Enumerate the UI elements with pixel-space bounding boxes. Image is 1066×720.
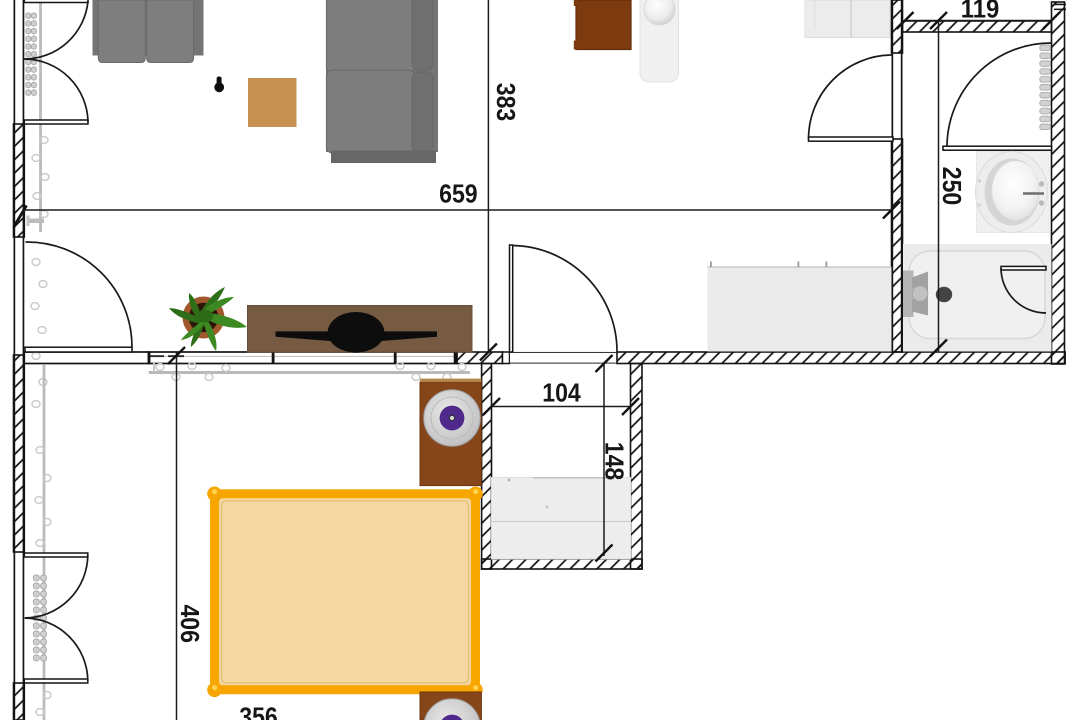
svg-text:356: 356 [239, 704, 278, 720]
svg-text:148: 148 [600, 442, 628, 481]
svg-text:406: 406 [175, 604, 203, 643]
svg-text:659: 659 [439, 181, 478, 209]
svg-text:104: 104 [542, 380, 581, 408]
svg-text:383: 383 [491, 83, 519, 122]
svg-text:119: 119 [961, 0, 1000, 24]
svg-text:250: 250 [937, 167, 965, 206]
